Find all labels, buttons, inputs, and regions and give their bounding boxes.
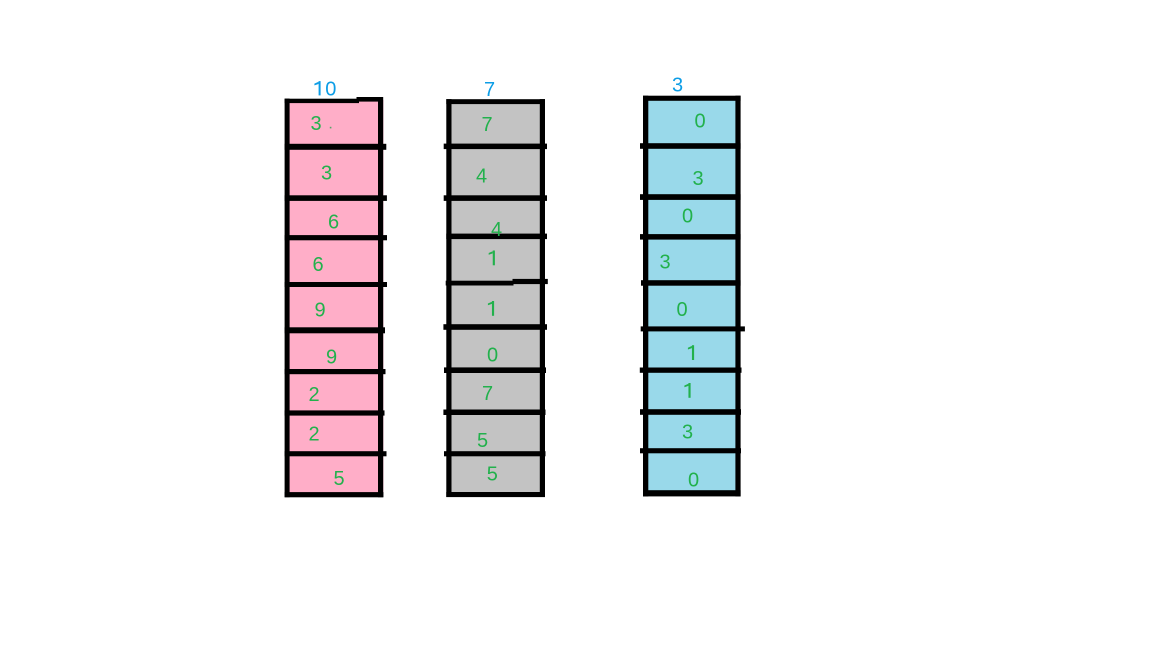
- svg-text:0: 0: [325, 78, 336, 100]
- svg-text:3: 3: [692, 168, 703, 190]
- svg-text:3: 3: [321, 162, 332, 184]
- svg-text:0: 0: [694, 110, 705, 132]
- svg-text:3: 3: [672, 74, 683, 96]
- svg-text:0: 0: [676, 299, 687, 321]
- svg-text:9: 9: [314, 299, 325, 321]
- svg-text:5: 5: [477, 430, 488, 452]
- svg-text:6: 6: [312, 254, 323, 276]
- svg-text:7: 7: [481, 114, 492, 136]
- svg-text:3: 3: [310, 113, 321, 135]
- svg-text:3: 3: [682, 421, 693, 443]
- svg-text:0: 0: [487, 344, 498, 366]
- svg-text:5: 5: [487, 463, 498, 485]
- svg-text:0: 0: [682, 205, 693, 227]
- svg-text:4: 4: [476, 165, 487, 187]
- svg-text:3: 3: [659, 251, 670, 273]
- svg-text:4: 4: [491, 219, 502, 241]
- svg-text:2: 2: [308, 423, 319, 445]
- svg-text:9: 9: [326, 346, 337, 368]
- svg-text:6: 6: [328, 211, 339, 233]
- svg-text:7: 7: [482, 383, 493, 405]
- svg-text:2: 2: [308, 384, 319, 406]
- svg-text:0: 0: [688, 469, 699, 491]
- svg-text:7: 7: [484, 79, 495, 101]
- svg-text:5: 5: [333, 468, 344, 490]
